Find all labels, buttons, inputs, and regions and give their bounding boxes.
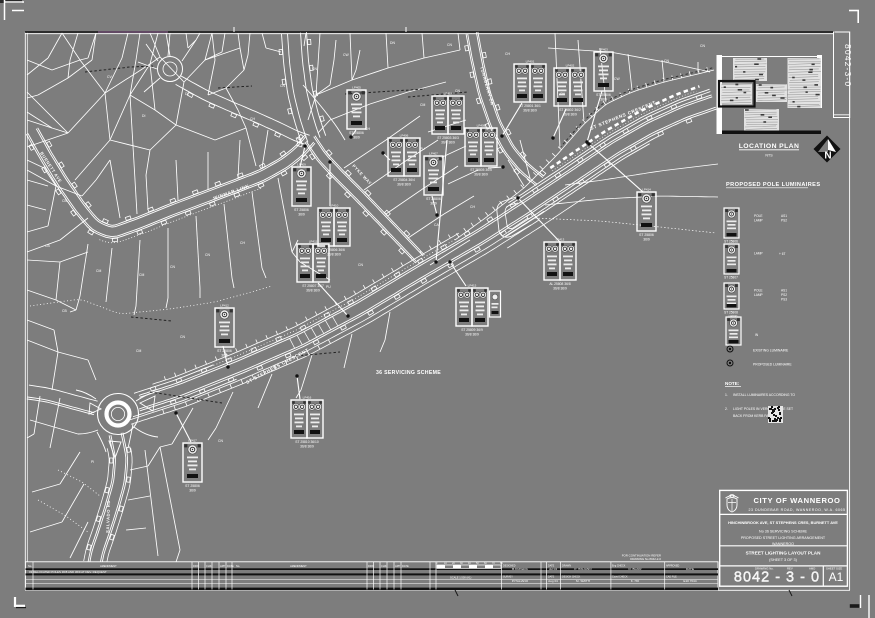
svg-text:36/9: 36/9: [189, 489, 196, 493]
svg-text:PU: PU: [326, 285, 331, 289]
svg-text:ST 25806: ST 25806: [349, 131, 364, 135]
svg-text:LP411: LP411: [309, 240, 318, 244]
svg-text:ST 25806: ST 25806: [185, 484, 200, 488]
svg-text:AMENDMENT: AMENDMENT: [100, 564, 117, 568]
svg-text:LP417: LP417: [188, 439, 197, 443]
svg-text:CH: CH: [505, 52, 510, 56]
svg-text:LP406: LP406: [400, 134, 409, 138]
svg-text:LP414: LP414: [642, 188, 651, 192]
svg-text:LP401: LP401: [526, 60, 535, 64]
svg-text:LP404: LP404: [444, 92, 453, 96]
svg-text:CN: CN: [447, 43, 452, 47]
svg-text:DI: DI: [185, 92, 188, 96]
svg-text:03 RELOCATED POLES 36/8 AND 3: 03 RELOCATED POLES 36/8 AND 36/9 AT DEV.…: [29, 570, 107, 574]
svg-text:LP407: LP407: [429, 152, 438, 156]
svg-text:ST 25802 36/2: ST 25802 36/2: [559, 108, 581, 112]
svg-text:APPROVED: APPROVED: [666, 564, 680, 567]
svg-text:K. HO: K. HO: [631, 579, 640, 583]
svg-text:PROPOSED STREET LIGHTING ARRAN: PROPOSED STREET LIGHTING ARRANGEMENT: [741, 536, 826, 540]
svg-text:CA: CA: [434, 223, 439, 227]
svg-text:ST 25806: ST 25806: [217, 349, 232, 353]
svg-text:STREET LIGHTING LAYOUT PLAN: STREET LIGHTING LAYOUT PLAN: [746, 551, 822, 556]
svg-text:Eng CHECK: Eng CHECK: [612, 564, 626, 567]
svg-text:ST 25806: ST 25806: [639, 233, 654, 237]
svg-text:NTS: NTS: [765, 154, 773, 158]
svg-text:LAMP: LAMP: [754, 252, 763, 256]
svg-text:8042 - 3 - 0: 8042 - 3 - 0: [734, 570, 820, 586]
svg-text:CN: CN: [358, 263, 363, 267]
svg-text:DI: DI: [142, 114, 145, 118]
svg-text:DRN: DRN: [193, 564, 199, 568]
svg-text:LOCATION PLAN: LOCATION PLAN: [739, 143, 800, 150]
svg-text:ST 25810 36/10: ST 25810 36/10: [295, 440, 319, 444]
svg-text:36/8 36/9: 36/8 36/9: [553, 287, 567, 291]
svg-text:LAMP: LAMP: [754, 219, 763, 223]
svg-text:ST 25801 36/1: ST 25801 36/1: [519, 104, 541, 108]
svg-text:AL 25808 36/8: AL 25808 36/8: [549, 282, 570, 286]
svg-text:M. SMITH: M. SMITH: [576, 579, 590, 583]
svg-text:SCALE 1:500 (A1): SCALE 1:500 (A1): [450, 576, 471, 580]
svg-text:POLE: POLE: [754, 289, 763, 293]
svg-text:CM: CM: [139, 273, 144, 277]
svg-text:CHK: CHK: [381, 564, 387, 568]
svg-text:PS2: PS2: [781, 219, 787, 223]
svg-text:CN: CN: [280, 84, 285, 88]
svg-text:Jul 04: Jul 04: [549, 567, 558, 571]
svg-text:36/8 36/9: 36/8 36/9: [306, 289, 320, 293]
svg-text:PU: PU: [420, 147, 425, 151]
svg-text:1.: 1.: [725, 393, 728, 397]
svg-text:36/8 36/9: 36/8 36/9: [563, 113, 577, 117]
svg-text:36/8 36/9: 36/8 36/9: [397, 183, 411, 187]
svg-text:B.KUKERA: B.KUKERA: [512, 567, 529, 571]
svg-text:LP410: LP410: [330, 204, 339, 208]
svg-text:POLE: POLE: [754, 214, 763, 218]
svg-text:APP: APP: [220, 564, 225, 568]
svg-text:CN: CN: [205, 253, 210, 257]
svg-text:ST 25807: ST 25807: [724, 276, 738, 280]
svg-text:DRAWN: DRAWN: [562, 564, 571, 567]
svg-text:NOTE:: NOTE:: [725, 381, 740, 386]
svg-text:CV: CV: [107, 75, 112, 79]
svg-text:CN: CN: [664, 59, 669, 63]
svg-text:CM: CM: [420, 103, 425, 107]
svg-text:CN: CN: [455, 89, 460, 93]
svg-text:LP408: LP408: [477, 124, 486, 128]
svg-text:2.: 2.: [725, 407, 728, 411]
svg-text:ST 25809 36/9: ST 25809 36/9: [461, 328, 483, 332]
svg-text:36/8 36/9: 36/8 36/9: [300, 445, 314, 449]
svg-text:LP403: LP403: [599, 48, 608, 52]
svg-text:Aug 04: Aug 04: [548, 579, 558, 583]
svg-text:CN: CN: [180, 335, 185, 339]
svg-text:LP405: LP405: [352, 86, 361, 90]
svg-text:PROPOSED LUMINAIRE: PROPOSED LUMINAIRE: [753, 363, 792, 367]
svg-text:PS2: PS2: [781, 293, 787, 297]
svg-text:CN: CN: [700, 44, 705, 48]
svg-text:DATE: DATE: [686, 567, 694, 571]
svg-text:+ 6T: + 6T: [779, 252, 786, 256]
svg-text:APP: APP: [395, 564, 400, 568]
svg-text:CN: CN: [218, 439, 223, 443]
svg-text:CW: CW: [343, 53, 349, 57]
svg-text:E10 7044: E10 7044: [683, 579, 697, 583]
svg-text:Coord CHECK: Coord CHECK: [612, 576, 628, 579]
svg-text:CH: CH: [470, 205, 475, 209]
svg-text:DRAWING No 8042-2-0: DRAWING No 8042-2-0: [630, 557, 661, 561]
svg-text:36/9: 36/9: [430, 202, 437, 206]
svg-text:PROPOSED POLE LUMINAIRES: PROPOSED POLE LUMINAIRES: [726, 182, 820, 188]
svg-text:DN: DN: [390, 41, 395, 45]
svg-text:PS3: PS3: [781, 298, 787, 302]
svg-text:36/9: 36/9: [353, 136, 360, 140]
svg-text:ST 25806: ST 25806: [724, 240, 738, 244]
svg-text:CHK: CHK: [206, 564, 212, 568]
svg-text:CB: CB: [62, 309, 67, 313]
svg-text:36/9: 36/9: [298, 213, 305, 217]
svg-text:WANNEROO: WANNEROO: [772, 542, 794, 546]
svg-text:ST 25804 36/4: ST 25804 36/4: [393, 178, 415, 182]
svg-text:LP416: LP416: [303, 396, 312, 400]
svg-text:N: N: [824, 151, 831, 162]
svg-text:A1: A1: [829, 570, 844, 584]
svg-text:No.: No.: [28, 564, 32, 568]
svg-text:CH: CH: [240, 241, 245, 245]
svg-text:LP415: LP415: [468, 284, 477, 288]
svg-text:ST 25806: ST 25806: [596, 93, 611, 97]
svg-text:LIGHT POLES IN VERGES TO BE SE: LIGHT POLES IN VERGES TO BE SET: [733, 407, 793, 411]
svg-text:CN: CN: [170, 265, 175, 269]
svg-text:CM: CM: [96, 269, 101, 273]
svg-text:CITY OF WANNEROO: CITY OF WANNEROO: [753, 496, 840, 505]
svg-text:P. ITALIANO: P. ITALIANO: [574, 567, 592, 571]
svg-text:LP402: LP402: [566, 64, 575, 68]
svg-text:CM: CM: [136, 349, 141, 353]
svg-text:CAD FILE: CAD FILE: [666, 576, 677, 579]
svg-text:DATE: DATE: [227, 564, 234, 568]
svg-text:36/9: 36/9: [221, 354, 228, 358]
svg-text:ST 25807 36/7: ST 25807 36/7: [302, 284, 324, 288]
svg-text:CW: CW: [614, 77, 620, 81]
svg-text:P.ITALIANO: P.ITALIANO: [512, 579, 529, 583]
svg-text:LAMP: LAMP: [754, 293, 763, 297]
svg-text:8042-3-0: 8042-3-0: [843, 44, 853, 87]
svg-text:36/8 36/9: 36/8 36/9: [465, 333, 479, 337]
svg-text:CH: CH: [250, 117, 255, 121]
svg-text:CB: CB: [62, 199, 67, 203]
svg-text:D. BLAIR: D. BLAIR: [629, 567, 643, 571]
svg-text:ST 25805 36/5: ST 25805 36/5: [470, 168, 492, 172]
svg-text:EXISTING LUMINAIRE: EXISTING LUMINAIRE: [753, 349, 789, 353]
svg-text:(SHEET 3 OF 3): (SHEET 3 OF 3): [769, 558, 798, 562]
svg-text:AMENDMENT: AMENDMENT: [290, 564, 307, 568]
svg-text:ST 25806: ST 25806: [294, 208, 309, 212]
svg-text:ST 25803 36/3: ST 25803 36/3: [437, 136, 459, 140]
svg-text:PI: PI: [91, 460, 94, 464]
svg-text:CN: CN: [312, 67, 317, 71]
svg-text:36/9: 36/9: [643, 238, 650, 242]
svg-text:LP409: LP409: [297, 163, 306, 167]
svg-text:AS1: AS1: [781, 214, 787, 218]
svg-text:36/8 36/9: 36/8 36/9: [441, 141, 455, 145]
svg-text:DRN: DRN: [368, 564, 374, 568]
svg-text:HINCHINBROOK AVE, ST STEPHENS: HINCHINBROOK AVE, ST STEPHENS CRES, BURN…: [728, 520, 838, 525]
svg-text:36/9: 36/9: [600, 98, 607, 102]
svg-text:ST 25806: ST 25806: [426, 197, 441, 201]
svg-text:AS1: AS1: [781, 289, 787, 293]
svg-text:23 DUNDEBAR ROAD, WANNEROO, W.: 23 DUNDEBAR ROAD, WANNEROO, W.A. 6065: [748, 508, 845, 512]
svg-text:No.: No.: [236, 564, 240, 568]
svg-text:LP413: LP413: [556, 238, 565, 242]
svg-text:LP412: LP412: [220, 304, 229, 308]
svg-text:INSTALL LUMINAIRES ACCORDING T: INSTALL LUMINAIRES ACCORDING TO: [733, 393, 795, 397]
svg-text:CB: CB: [45, 244, 50, 248]
svg-text:36 SERVICING SCHEME: 36 SERVICING SCHEME: [376, 370, 441, 376]
svg-text:DATE: DATE: [402, 564, 409, 568]
svg-text:36/8 36/9: 36/8 36/9: [523, 109, 537, 113]
svg-text:No 36 SERVICING SCHEME: No 36 SERVICING SCHEME: [759, 530, 807, 534]
svg-text:36/8 36/9: 36/8 36/9: [474, 173, 488, 177]
